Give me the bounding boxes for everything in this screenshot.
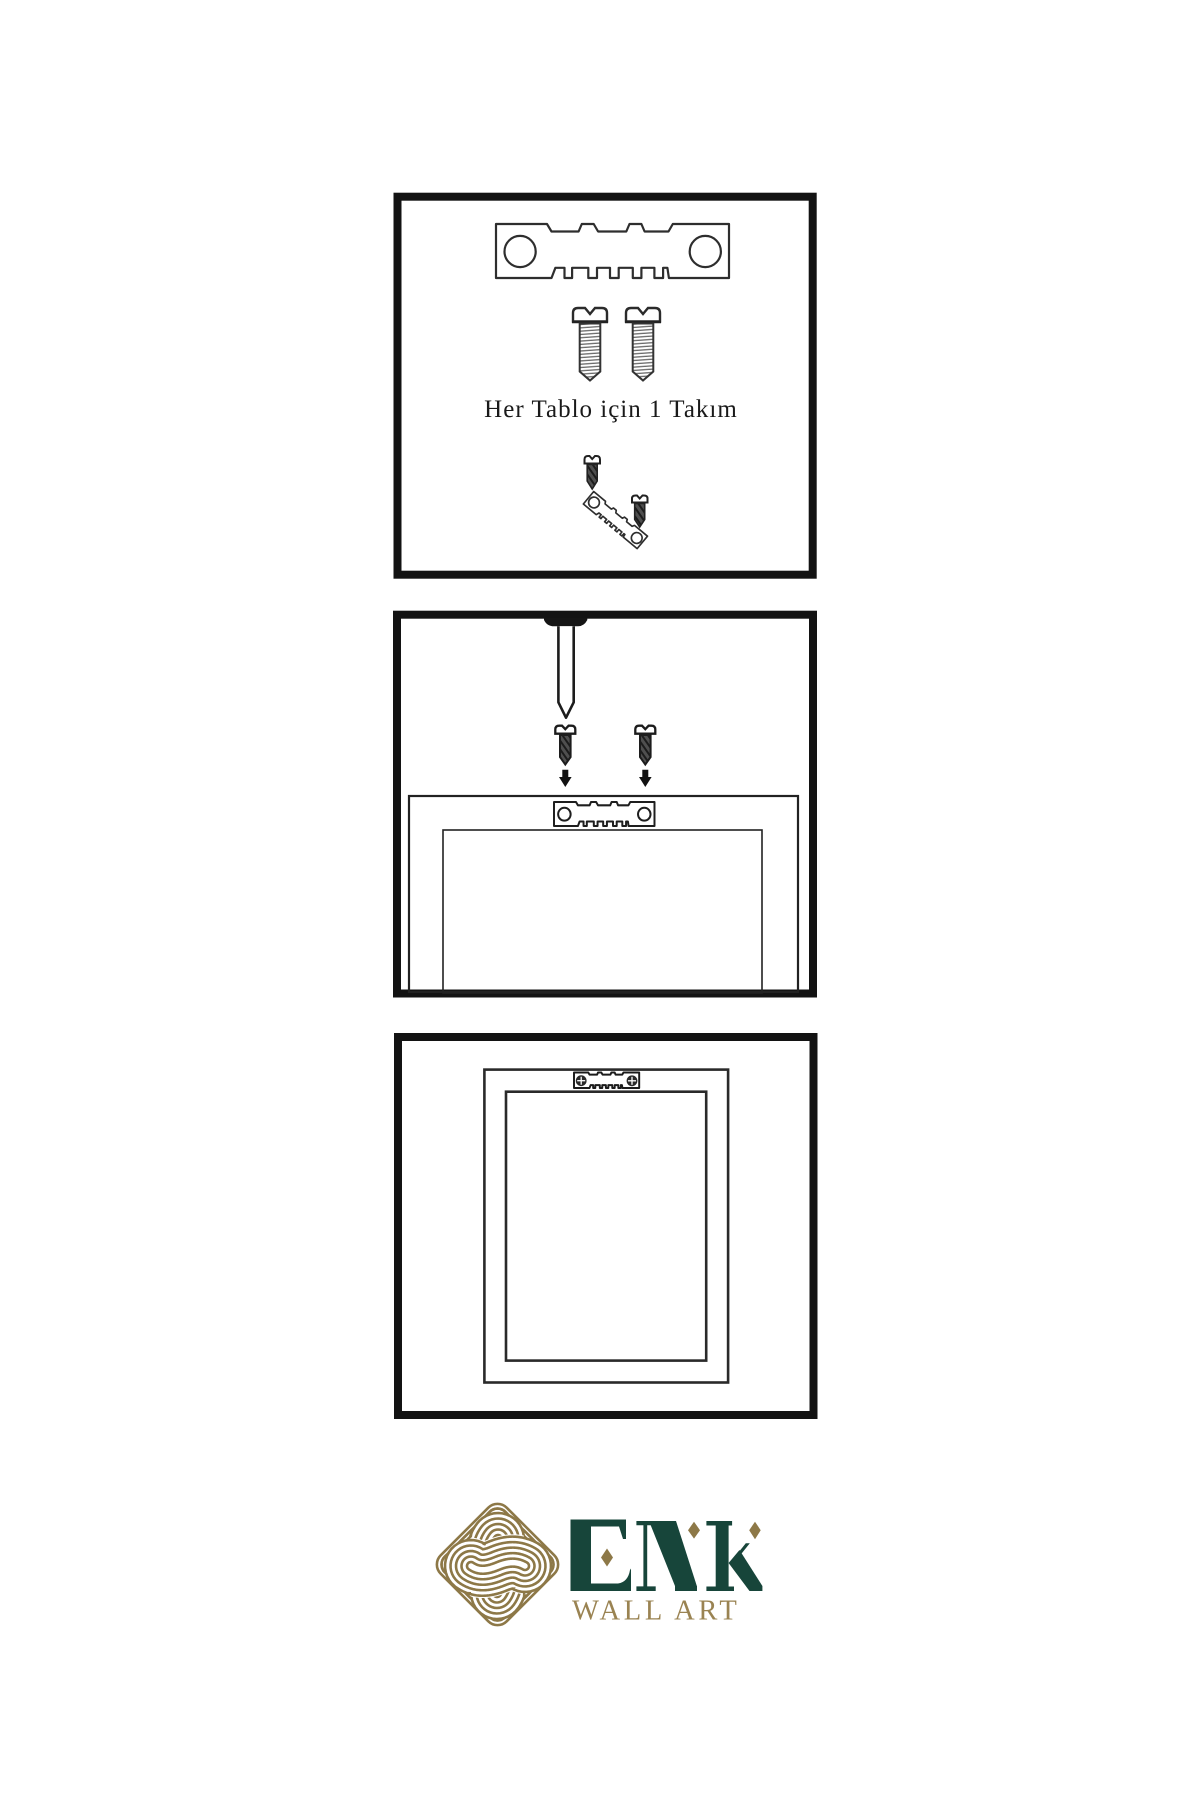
- svg-text:WALL ART: WALL ART: [572, 1596, 741, 1627]
- svg-text:Her Tablo için 1 Takım: Her Tablo için 1 Takım: [484, 396, 738, 423]
